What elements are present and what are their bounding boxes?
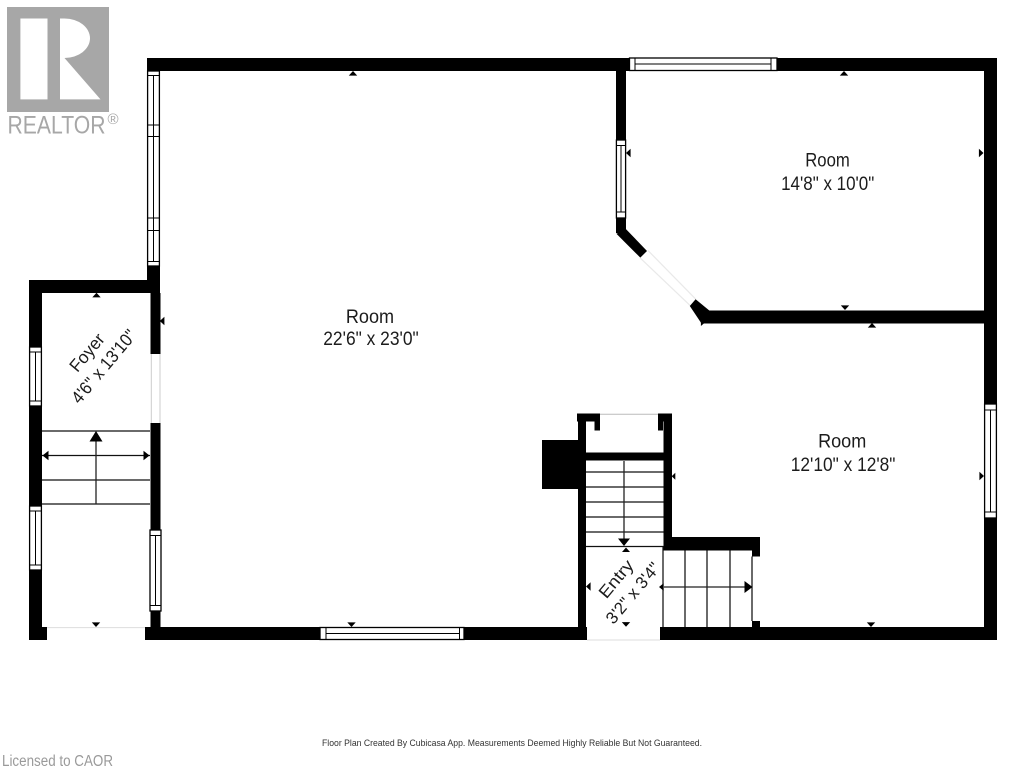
svg-text:REALTOR: REALTOR xyxy=(8,112,106,140)
svg-text:Licensed to CAOR: Licensed to CAOR xyxy=(2,753,113,768)
svg-text:Floor Plan Created By Cubicasa: Floor Plan Created By Cubicasa App. Meas… xyxy=(322,738,702,749)
svg-text:Room: Room xyxy=(346,306,394,328)
svg-text:22'6" x 23'0": 22'6" x 23'0" xyxy=(323,328,419,350)
svg-text:Room: Room xyxy=(818,430,866,452)
svg-text:12'10" x 12'8": 12'10" x 12'8" xyxy=(791,454,896,476)
svg-text:®: ® xyxy=(108,111,119,128)
svg-text:Room: Room xyxy=(805,149,850,171)
svg-text:14'8" x 10'0": 14'8" x 10'0" xyxy=(781,173,874,195)
